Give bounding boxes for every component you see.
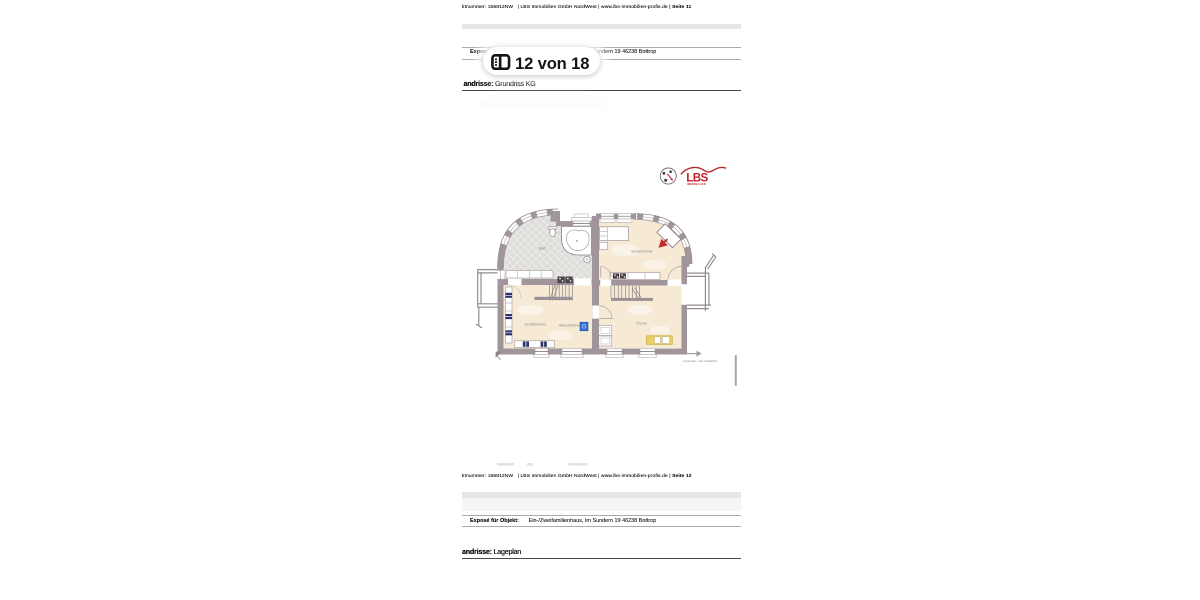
svg-text:Schlafzimmer: Schlafzimmer	[525, 323, 548, 327]
svg-text:Schlafzimmer: Schlafzimmer	[631, 250, 654, 254]
svg-text:Waschküche: Waschküche	[559, 324, 579, 328]
svg-text:IMMOBILIEN: IMMOBILIEN	[687, 182, 706, 186]
svg-text:Exposeplan, nicht maßstäblich: Exposeplan, nicht maßstäblich	[684, 360, 719, 363]
svg-text:Bad: Bad	[539, 247, 545, 251]
svg-text:Küche: Küche	[637, 322, 647, 326]
